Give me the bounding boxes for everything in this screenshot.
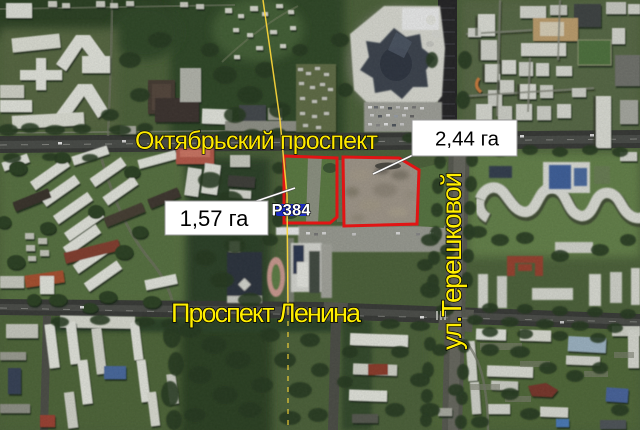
svg-text:1,57 га: 1,57 га <box>180 206 249 231</box>
svg-text:Октябрьский проспект: Октябрьский проспект <box>135 127 379 155</box>
svg-text:Р384: Р384 <box>272 202 312 220</box>
svg-text:ул.Терешковой: ул.Терешковой <box>436 172 467 350</box>
svg-text:Проспект Ленина: Проспект Ленина <box>171 298 362 328</box>
svg-text:2,44 га: 2,44 га <box>435 128 500 151</box>
